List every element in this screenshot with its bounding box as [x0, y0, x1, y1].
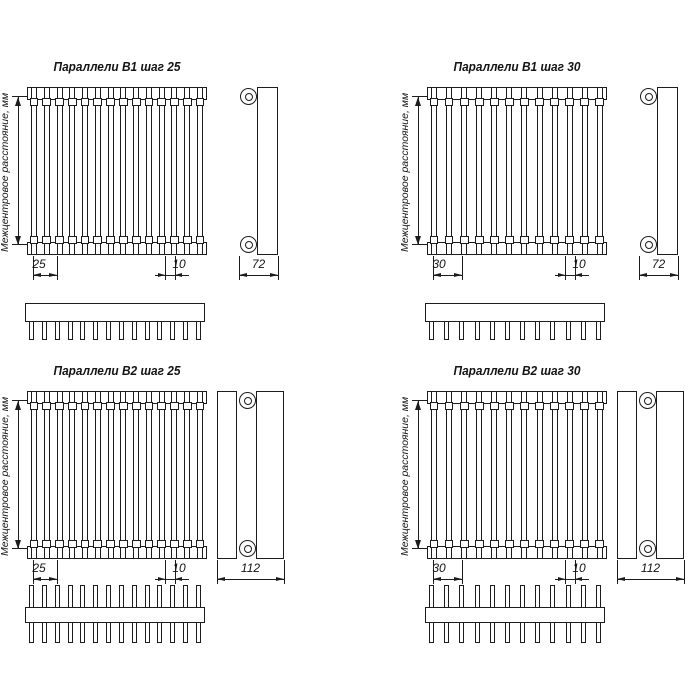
extension-line	[278, 256, 279, 280]
extension-line	[684, 560, 685, 584]
side-body-front-row	[617, 391, 637, 559]
top-view-teeth-row-up	[429, 585, 601, 609]
top-view-tube-tooth	[183, 621, 188, 643]
arrowhead-right-icon	[158, 577, 165, 581]
radiator-tube	[120, 87, 126, 255]
depth-dimension-value: 112	[217, 562, 284, 575]
top-view-tube-tooth	[520, 585, 525, 609]
vertical-axis-label: Межцентровое расстояние, мм	[398, 391, 413, 561]
depth-dimension-value: 112	[617, 562, 684, 575]
vertical-axis-label: Межцентровое расстояние, мм	[398, 87, 413, 257]
radiator-tube	[57, 391, 63, 559]
top-view-tube-tooth	[196, 585, 201, 609]
top-view-header	[425, 607, 605, 623]
radiator-tube	[171, 87, 177, 255]
radiator-tube	[133, 87, 139, 255]
pipe-bore-icon	[644, 397, 652, 405]
dimension-line	[617, 579, 684, 580]
arrowhead-right-icon	[454, 273, 462, 277]
top-view-tube-tooth	[80, 585, 85, 609]
top-view-tube-tooth	[68, 585, 73, 609]
radiator-tube	[171, 391, 177, 559]
radiator-tube	[567, 87, 573, 255]
top-view-tube-tooth	[55, 585, 60, 609]
top-view-tube-tooth	[520, 621, 525, 643]
quadrant-b1-step-30: Параллели В1 шаг 30 Межцентровое расстоя…	[400, 0, 700, 348]
arrowhead-down-icon	[15, 236, 21, 245]
radiator-tube	[506, 87, 512, 255]
radiator-tube	[146, 87, 152, 255]
depth-dimension-value: 72	[239, 258, 278, 271]
top-view-header	[25, 607, 205, 623]
radiator-tube	[491, 87, 497, 255]
radiator-tube	[491, 391, 497, 559]
radiator-tube	[184, 391, 190, 559]
top-view-tube-tooth	[444, 621, 449, 643]
radiator-tube	[184, 87, 190, 255]
top-view-teeth-row-up	[29, 585, 201, 609]
side-body-back-row	[256, 391, 284, 559]
dimension-line	[217, 579, 284, 580]
radiator-tube	[476, 87, 482, 255]
radiator-tube	[197, 87, 203, 255]
top-view-header	[25, 303, 205, 322]
pipe-bore-icon	[644, 545, 652, 553]
dimension-line	[18, 97, 19, 245]
extension-line	[462, 256, 463, 280]
top-view-tube-tooth	[429, 585, 434, 609]
radiator-tube	[82, 87, 88, 255]
radiator-tube	[461, 391, 467, 559]
arrowhead-down-icon	[415, 236, 421, 245]
bottom-pipe-connection-icon	[239, 540, 256, 557]
arrowhead-right-icon	[454, 577, 462, 581]
radiator-tube	[95, 391, 101, 559]
arrowhead-left-icon	[433, 577, 441, 581]
arrowhead-up-icon	[15, 97, 21, 106]
radiator-front-view	[27, 87, 207, 255]
arrowhead-left-icon	[33, 577, 41, 581]
dimension-line	[418, 97, 419, 245]
radiator-tube	[95, 87, 101, 255]
quadrant-b2-step-30: Параллели В2 шаг 30 Межцентровое расстоя…	[400, 304, 700, 652]
radiator-tube	[197, 391, 203, 559]
radiator-tube	[69, 87, 75, 255]
top-view-tube-tooth	[535, 621, 540, 643]
top-view-tube-tooth	[490, 585, 495, 609]
radiator-tube	[552, 391, 558, 559]
top-view-teeth-row-down	[429, 621, 601, 643]
top-view-tube-tooth	[566, 621, 571, 643]
arrowhead-down-icon	[15, 540, 21, 549]
arrowhead-down-icon	[415, 540, 421, 549]
radiator-tube	[108, 391, 114, 559]
pipe-bore-icon	[245, 93, 253, 101]
pipe-bore-icon	[245, 241, 253, 249]
radiator-tube	[446, 391, 452, 559]
top-view-tube-tooth	[581, 621, 586, 643]
depth-dimension-value: 72	[639, 258, 678, 271]
radiator-tube-row	[431, 87, 603, 255]
top-view-tube-tooth	[535, 585, 540, 609]
top-view-header	[425, 303, 605, 322]
extension-line	[57, 560, 58, 584]
radiator-tube	[57, 87, 63, 255]
vertical-axis-label: Межцентровое расстояние, мм	[0, 87, 13, 257]
arrowhead-left-icon	[239, 273, 247, 277]
top-view-tube-tooth	[459, 621, 464, 643]
arrowhead-right-icon	[676, 577, 684, 581]
top-view-tube-tooth	[170, 621, 175, 643]
radiator-tube-row	[31, 87, 203, 255]
top-view-tube-tooth	[196, 621, 201, 643]
extension-line	[678, 256, 679, 280]
top-view-tube-tooth	[505, 621, 510, 643]
arrowhead-right-icon	[276, 577, 284, 581]
top-view-tube-tooth	[132, 585, 137, 609]
dimension-line	[418, 401, 419, 549]
top-view-tube-tooth	[550, 621, 555, 643]
side-body-front-row	[217, 391, 237, 559]
top-view-tube-tooth	[132, 621, 137, 643]
pitch-dimension-value: 25	[25, 258, 53, 271]
top-view-tube-tooth	[596, 621, 601, 643]
pipe-bore-icon	[244, 397, 252, 405]
bottom-pipe-connection-icon	[240, 236, 257, 253]
top-view-tube-tooth	[93, 621, 98, 643]
radiator-tube	[44, 87, 50, 255]
radiator-tube	[597, 87, 603, 255]
edge-dimension-value: 10	[166, 258, 192, 271]
radiator-tube-row	[431, 391, 603, 559]
top-view-tube-tooth	[429, 621, 434, 643]
radiator-tube	[567, 391, 573, 559]
top-view-tube-tooth	[106, 621, 111, 643]
top-view-tube-tooth	[550, 585, 555, 609]
top-view-tube-tooth	[119, 621, 124, 643]
arrowhead-right-icon	[558, 577, 565, 581]
bottom-pipe-connection-icon	[640, 236, 657, 253]
arrowhead-right-icon	[49, 273, 57, 277]
radiator-tube	[476, 391, 482, 559]
top-view-tube-tooth	[581, 585, 586, 609]
arrowhead-left-icon	[433, 273, 441, 277]
arrowhead-right-icon	[670, 273, 678, 277]
top-view-tube-tooth	[490, 621, 495, 643]
arrowhead-up-icon	[15, 401, 21, 410]
panel-title: Параллели В1 шаг 25	[32, 60, 203, 76]
radiator-tube	[133, 391, 139, 559]
top-view-tube-tooth	[475, 621, 480, 643]
radiator-tube	[521, 391, 527, 559]
top-view-tube-tooth	[42, 585, 47, 609]
top-view-tube-tooth	[119, 585, 124, 609]
extension-line	[462, 560, 463, 584]
radiator-front-view	[27, 391, 207, 559]
top-view-tube-tooth	[170, 585, 175, 609]
arrowhead-left-icon	[175, 273, 182, 277]
technical-drawing-canvas: Параллели В1 шаг 25 Межцентровое расстоя…	[0, 0, 700, 700]
top-view-tube-tooth	[29, 585, 34, 609]
top-view-tube-tooth	[29, 621, 34, 643]
top-view-tube-tooth	[475, 585, 480, 609]
arrowhead-left-icon	[575, 273, 582, 277]
arrowhead-up-icon	[415, 97, 421, 106]
radiator-tube	[537, 87, 543, 255]
arrowhead-right-icon	[558, 273, 565, 277]
pipe-bore-icon	[645, 93, 653, 101]
radiator-tube	[44, 391, 50, 559]
arrowhead-left-icon	[175, 577, 182, 581]
radiator-tube	[69, 391, 75, 559]
side-body	[657, 87, 678, 255]
radiator-tube	[146, 391, 152, 559]
pipe-bore-icon	[244, 545, 252, 553]
top-view-tube-tooth	[106, 585, 111, 609]
radiator-tube	[597, 391, 603, 559]
radiator-front-view	[427, 391, 607, 559]
radiator-tube	[431, 87, 437, 255]
panel-title: Параллели В2 шаг 30	[432, 364, 603, 380]
top-view-tube-tooth	[566, 585, 571, 609]
radiator-tube	[120, 391, 126, 559]
pitch-dimension-value: 25	[25, 562, 53, 575]
top-view-tube-tooth	[93, 585, 98, 609]
radiator-tube	[582, 391, 588, 559]
side-body	[257, 87, 278, 255]
radiator-tube	[159, 391, 165, 559]
arrowhead-up-icon	[415, 401, 421, 410]
radiator-tube	[506, 391, 512, 559]
pitch-dimension-value: 30	[425, 258, 453, 271]
top-view-tube-tooth	[157, 585, 162, 609]
radiator-tube	[521, 87, 527, 255]
top-view-tube-tooth	[505, 585, 510, 609]
arrowhead-right-icon	[158, 273, 165, 277]
top-pipe-connection-icon	[240, 88, 257, 105]
edge-dimension-value: 10	[566, 258, 592, 271]
radiator-tube	[552, 87, 558, 255]
top-pipe-connection-icon	[640, 88, 657, 105]
dimension-line	[18, 401, 19, 549]
arrowhead-left-icon	[217, 577, 225, 581]
top-pipe-connection-icon	[639, 392, 656, 409]
edge-dimension-value: 10	[566, 562, 592, 575]
top-view-tube-tooth	[183, 585, 188, 609]
top-view-tube-tooth	[42, 621, 47, 643]
edge-dimension-value: 10	[166, 562, 192, 575]
top-view-tube-tooth	[596, 585, 601, 609]
radiator-front-view	[427, 87, 607, 255]
radiator-tube	[31, 87, 37, 255]
bottom-pipe-connection-icon	[639, 540, 656, 557]
radiator-tube	[82, 391, 88, 559]
vertical-axis-label: Межцентровое расстояние, мм	[0, 391, 13, 561]
quadrant-b2-step-25: Параллели В2 шаг 25 Межцентровое расстоя…	[0, 304, 300, 652]
radiator-tube	[159, 87, 165, 255]
side-body-back-row	[656, 391, 684, 559]
radiator-tube	[461, 87, 467, 255]
arrowhead-left-icon	[617, 577, 625, 581]
quadrant-b1-step-25: Параллели В1 шаг 25 Межцентровое расстоя…	[0, 0, 300, 348]
top-view-tube-tooth	[55, 621, 60, 643]
arrowhead-right-icon	[270, 273, 278, 277]
panel-title: Параллели В2 шаг 25	[32, 364, 203, 380]
top-view-tube-tooth	[145, 585, 150, 609]
top-view-tube-tooth	[68, 621, 73, 643]
radiator-tube	[108, 87, 114, 255]
radiator-tube	[446, 87, 452, 255]
radiator-tube	[31, 391, 37, 559]
arrowhead-left-icon	[575, 577, 582, 581]
extension-line	[57, 256, 58, 280]
top-view-tube-tooth	[145, 621, 150, 643]
top-view-tube-tooth	[80, 621, 85, 643]
pipe-bore-icon	[645, 241, 653, 249]
radiator-tube-row	[31, 391, 203, 559]
extension-line	[284, 560, 285, 584]
top-view-tube-tooth	[444, 585, 449, 609]
pitch-dimension-value: 30	[425, 562, 453, 575]
radiator-tube	[431, 391, 437, 559]
arrowhead-right-icon	[49, 577, 57, 581]
top-pipe-connection-icon	[239, 392, 256, 409]
arrowhead-left-icon	[33, 273, 41, 277]
top-view-tube-tooth	[157, 621, 162, 643]
top-view-teeth-row-down	[29, 621, 201, 643]
panel-title: Параллели В1 шаг 30	[432, 60, 603, 76]
radiator-tube	[582, 87, 588, 255]
top-view-tube-tooth	[459, 585, 464, 609]
arrowhead-left-icon	[639, 273, 647, 277]
radiator-tube	[537, 391, 543, 559]
